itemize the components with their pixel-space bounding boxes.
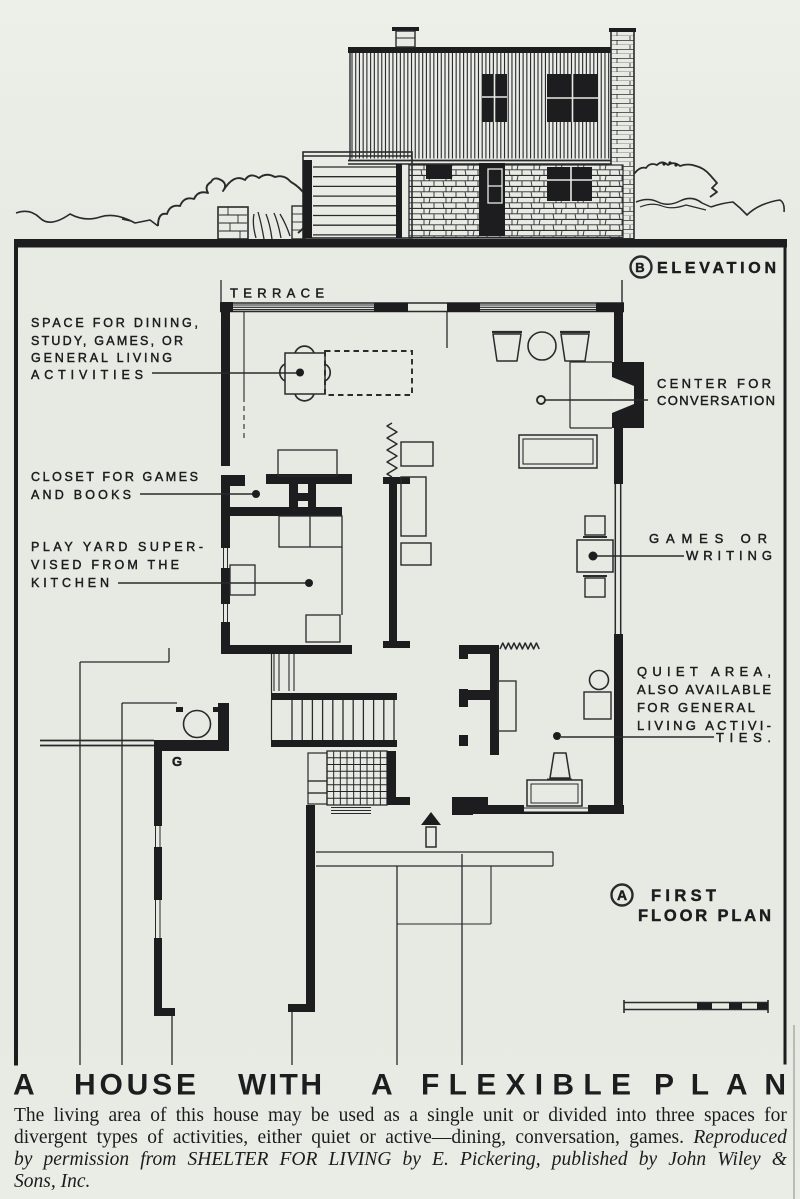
svg-text:CLOSET FOR GAMES: CLOSET FOR GAMES [31, 470, 198, 484]
svg-text:PLAY YARD SUPER-: PLAY YARD SUPER- [31, 540, 203, 554]
svg-text:VISED FROM THE: VISED FROM THE [31, 558, 179, 572]
svg-text:CENTER FOR: CENTER FOR [657, 376, 771, 391]
svg-text:CONVERSATION: CONVERSATION [657, 393, 775, 408]
svg-text:QUIET AREA,: QUIET AREA, [637, 664, 771, 679]
svg-text:ACTIVITIES: ACTIVITIES [31, 368, 143, 382]
svg-text:STUDY, GAMES, OR: STUDY, GAMES, OR [31, 334, 183, 348]
svg-text:ELEVATION: ELEVATION [657, 260, 776, 277]
svg-text:HOUSE: HOUSE [74, 1069, 196, 1102]
svg-text:PLAN: PLAN [654, 1069, 786, 1102]
svg-text:KITCHEN: KITCHEN [31, 576, 109, 590]
svg-text:FLEXIBLE: FLEXIBLE [421, 1069, 631, 1102]
svg-text:B: B [635, 260, 644, 275]
svg-text:GAMES OR: GAMES OR [649, 531, 767, 546]
svg-text:A: A [371, 1069, 393, 1102]
svg-text:FLOOR PLAN: FLOOR PLAN [638, 907, 771, 925]
svg-text:GENERAL LIVING: GENERAL LIVING [31, 351, 172, 365]
svg-text:LIVING ACTIVI-: LIVING ACTIVI- [637, 718, 771, 733]
svg-text:ALSO AVAILABLE: ALSO AVAILABLE [637, 682, 771, 697]
svg-text:FOR GENERAL: FOR GENERAL [637, 700, 755, 715]
svg-text:A: A [617, 887, 627, 903]
svg-text:SPACE FOR DINING,: SPACE FOR DINING, [31, 316, 198, 330]
svg-text:G: G [172, 754, 182, 769]
svg-text:A: A [13, 1069, 35, 1102]
svg-text:WITH: WITH [238, 1069, 322, 1102]
svg-text:AND BOOKS: AND BOOKS [31, 488, 131, 502]
svg-text:WRITING: WRITING [686, 548, 772, 563]
svg-text:TERRACE: TERRACE [230, 286, 324, 301]
svg-text:FIRST: FIRST [651, 887, 716, 905]
